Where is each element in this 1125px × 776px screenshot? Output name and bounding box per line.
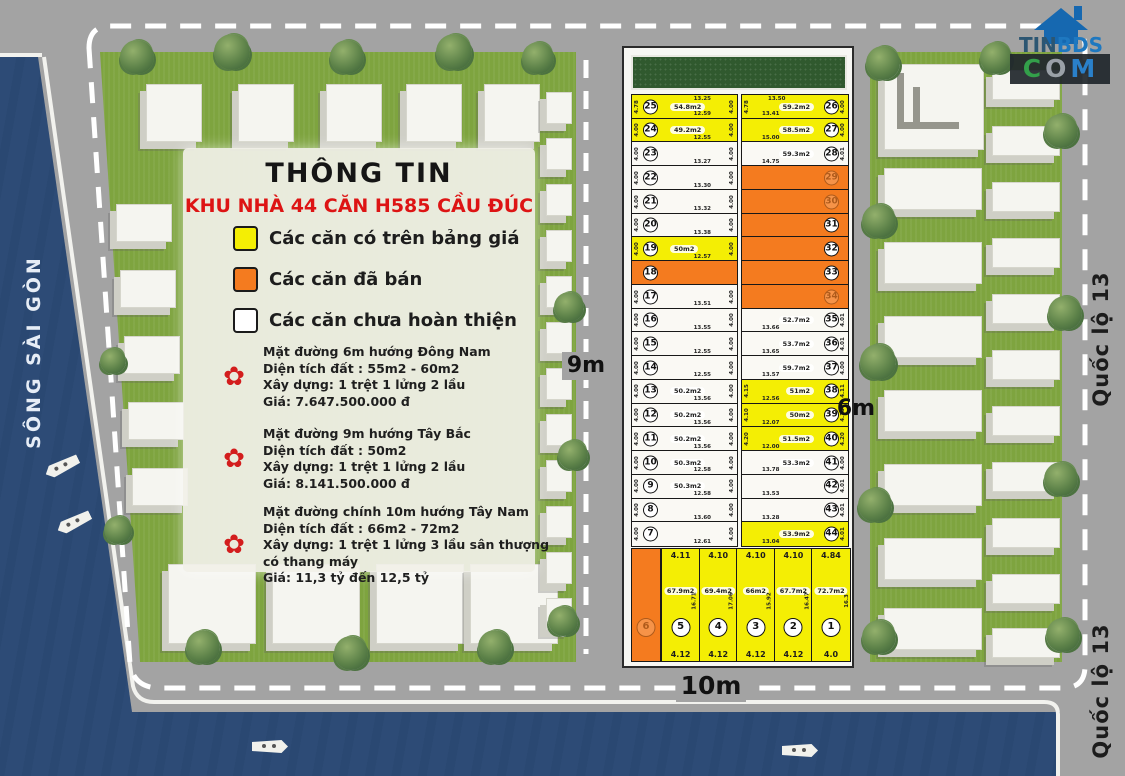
- tree: [554, 292, 584, 322]
- house: [992, 574, 1060, 604]
- legend-swatch: [233, 226, 258, 251]
- info-line: Giá: 8.141.500.000 đ: [263, 476, 410, 493]
- highway-label-2: Quốc lộ 13: [1089, 606, 1113, 776]
- legend-row: Các căn có trên bảng giá: [233, 226, 523, 252]
- house: [546, 92, 572, 124]
- plot-area: 72.7m2: [814, 587, 847, 595]
- legend-row: Các căn đã bán: [233, 267, 523, 293]
- flower-icon: ✿: [219, 362, 249, 392]
- house: [992, 406, 1060, 436]
- plot-number: 4: [709, 618, 728, 637]
- tree: [436, 34, 472, 70]
- plot-dim-top: 4.10: [775, 551, 812, 560]
- house: [120, 270, 176, 308]
- house: [546, 552, 572, 584]
- house: [884, 316, 982, 358]
- legend-label: Các căn chưa hoàn thiện: [269, 310, 517, 331]
- house: [546, 230, 572, 262]
- tree: [1048, 296, 1082, 330]
- info-line: Xây dựng: 1 trệt 1 lửng 3 lầu sân thượng: [263, 537, 549, 554]
- house: [406, 84, 462, 142]
- legend-row: Các căn chưa hoàn thiện: [233, 308, 523, 334]
- plot-dim-bottom: 4.12: [662, 650, 699, 659]
- road-label-6m: 6m: [834, 396, 878, 422]
- info-panel: THÔNG TIN KHU NHÀ 44 CĂN H585 CẦU ĐÚC Cá…: [183, 148, 535, 572]
- house: [884, 168, 982, 210]
- info-line: Diện tích đất : 55m2 - 60m2: [263, 361, 460, 378]
- house: [992, 238, 1060, 268]
- panel-subtitle: KHU NHÀ 44 CĂN H585 CẦU ĐÚC: [183, 195, 535, 217]
- site-plan-map: SÔNG SÀI GÒN Quốc lộ 13 Quốc lộ 13 9m 6m…: [0, 0, 1125, 776]
- house-roof-step: [913, 87, 959, 129]
- plot-number: 1: [821, 618, 840, 637]
- tree: [214, 34, 250, 70]
- house: [484, 84, 540, 142]
- flower-icon: ✿: [219, 444, 249, 474]
- road-label-9m: 9m: [562, 352, 610, 380]
- tree: [1044, 462, 1078, 496]
- plot-dim-bottom: 4.12: [737, 650, 774, 659]
- plot-grid: 2554.8m213.2512.594.784.002449.2m212.554…: [622, 46, 854, 668]
- plot-dim-top: 4.84: [812, 551, 849, 560]
- house: [326, 84, 382, 142]
- house: [546, 138, 572, 170]
- info-line: Mặt đường 6m hướng Đông Nam: [263, 344, 491, 361]
- plot-cell-6[interactable]: 6: [631, 548, 661, 662]
- house: [146, 84, 202, 142]
- tree: [104, 516, 132, 544]
- panel-title: THÔNG TIN: [183, 158, 535, 189]
- tree: [120, 40, 154, 74]
- house: [238, 84, 294, 142]
- house: [546, 506, 572, 538]
- legend-label: Các căn đã bán: [269, 269, 422, 290]
- plot-dim-side: 16.47: [804, 593, 810, 610]
- house: [992, 182, 1060, 212]
- tree: [858, 488, 892, 522]
- tinbds-watermark-logo: TINBDS COM: [1008, 2, 1114, 88]
- legend-swatch: [233, 308, 258, 333]
- house: [546, 322, 572, 354]
- tree: [1044, 114, 1078, 148]
- house: [470, 564, 558, 644]
- info-line: có thang máy: [263, 554, 358, 571]
- house: [124, 336, 180, 374]
- plot-dim-bottom: 4.12: [775, 650, 812, 659]
- highway-label-1: Quốc lộ 13: [1089, 254, 1113, 424]
- boat: [782, 744, 818, 757]
- info-line: Giá: 11,3 tỷ đến 12,5 tỷ: [263, 570, 429, 587]
- tree: [330, 40, 364, 74]
- tree: [866, 46, 900, 80]
- plot-dim-top: 4.10: [737, 551, 774, 560]
- tree: [186, 630, 220, 664]
- house: [992, 350, 1060, 380]
- info-line: Giá: 7.647.500.000 đ: [263, 394, 410, 411]
- plot-dim-bottom: 4.0: [812, 650, 849, 659]
- tree: [548, 606, 578, 636]
- info-line: Xây dựng: 1 trệt 1 lửng 2 lầu: [263, 459, 465, 476]
- tree: [334, 636, 368, 670]
- house: [546, 184, 572, 216]
- plot-number: 3: [746, 618, 765, 637]
- tree: [522, 42, 554, 74]
- info-line: Diện tích đất : 50m2: [263, 443, 407, 460]
- logo-text-tinbds: TINBDS: [1008, 35, 1114, 55]
- river-label: SÔNG SÀI GÒN: [23, 242, 45, 462]
- plot-number: 5: [671, 618, 690, 637]
- tree: [862, 620, 896, 654]
- road-label-10m: 10m: [676, 670, 746, 702]
- flower-icon: ✿: [219, 530, 249, 560]
- legend-swatch: [233, 267, 258, 292]
- house: [884, 390, 982, 432]
- plot-number: 2: [784, 618, 803, 637]
- tree: [558, 440, 588, 470]
- plot-area: 66m2: [743, 587, 769, 595]
- plot-cell-1[interactable]: 4.8472.7m216.314.0: [811, 548, 850, 662]
- house: [128, 402, 184, 440]
- tree: [478, 630, 512, 664]
- house: [116, 204, 172, 242]
- plot-dim-top: 4.11: [662, 551, 699, 560]
- plot-dim-side: 17.06: [729, 593, 735, 610]
- plot-dim-side: 16.71: [691, 593, 697, 610]
- house: [884, 608, 982, 650]
- info-line: Mặt đường chính 10m hướng Tây Nam: [263, 504, 529, 521]
- house: [884, 242, 982, 284]
- boat: [252, 740, 288, 753]
- tree: [860, 344, 896, 380]
- plot-row-bottom: 64.1167.9m216.7154.124.1069.4m217.0644.1…: [631, 48, 849, 662]
- plot-cell-3[interactable]: 4.1066m215.9234.12: [736, 548, 775, 662]
- house-large: [884, 64, 984, 150]
- plot-cell-5[interactable]: 4.1167.9m216.7154.12: [661, 548, 700, 662]
- house: [884, 464, 982, 506]
- plot-dim-side: 15.92: [767, 593, 773, 610]
- house: [132, 468, 188, 506]
- house: [884, 538, 982, 580]
- plot-cell-4[interactable]: 4.1069.4m217.0644.12: [699, 548, 738, 662]
- plot-cell-2[interactable]: 4.1067.7m216.4724.12: [774, 548, 813, 662]
- info-line: Mặt đường 9m hướng Tây Bắc: [263, 426, 471, 443]
- logo-text-com: COM: [1008, 55, 1114, 83]
- plot-dim-bottom: 4.12: [700, 650, 737, 659]
- legend-label: Các căn có trên bảng giá: [269, 228, 519, 249]
- house-chimney-icon: [1074, 6, 1082, 20]
- plot-dim-side: 16.3: [844, 594, 850, 608]
- plot-number: 6: [637, 618, 656, 637]
- info-line: Xây dựng: 1 trệt 1 lửng 2 lầu: [263, 377, 465, 394]
- plot-dim-top: 4.10: [700, 551, 737, 560]
- house: [992, 518, 1060, 548]
- tree: [862, 204, 896, 238]
- info-line: Diện tích đất : 66m2 - 72m2: [263, 521, 460, 538]
- tree: [1046, 618, 1080, 652]
- tree: [100, 348, 126, 374]
